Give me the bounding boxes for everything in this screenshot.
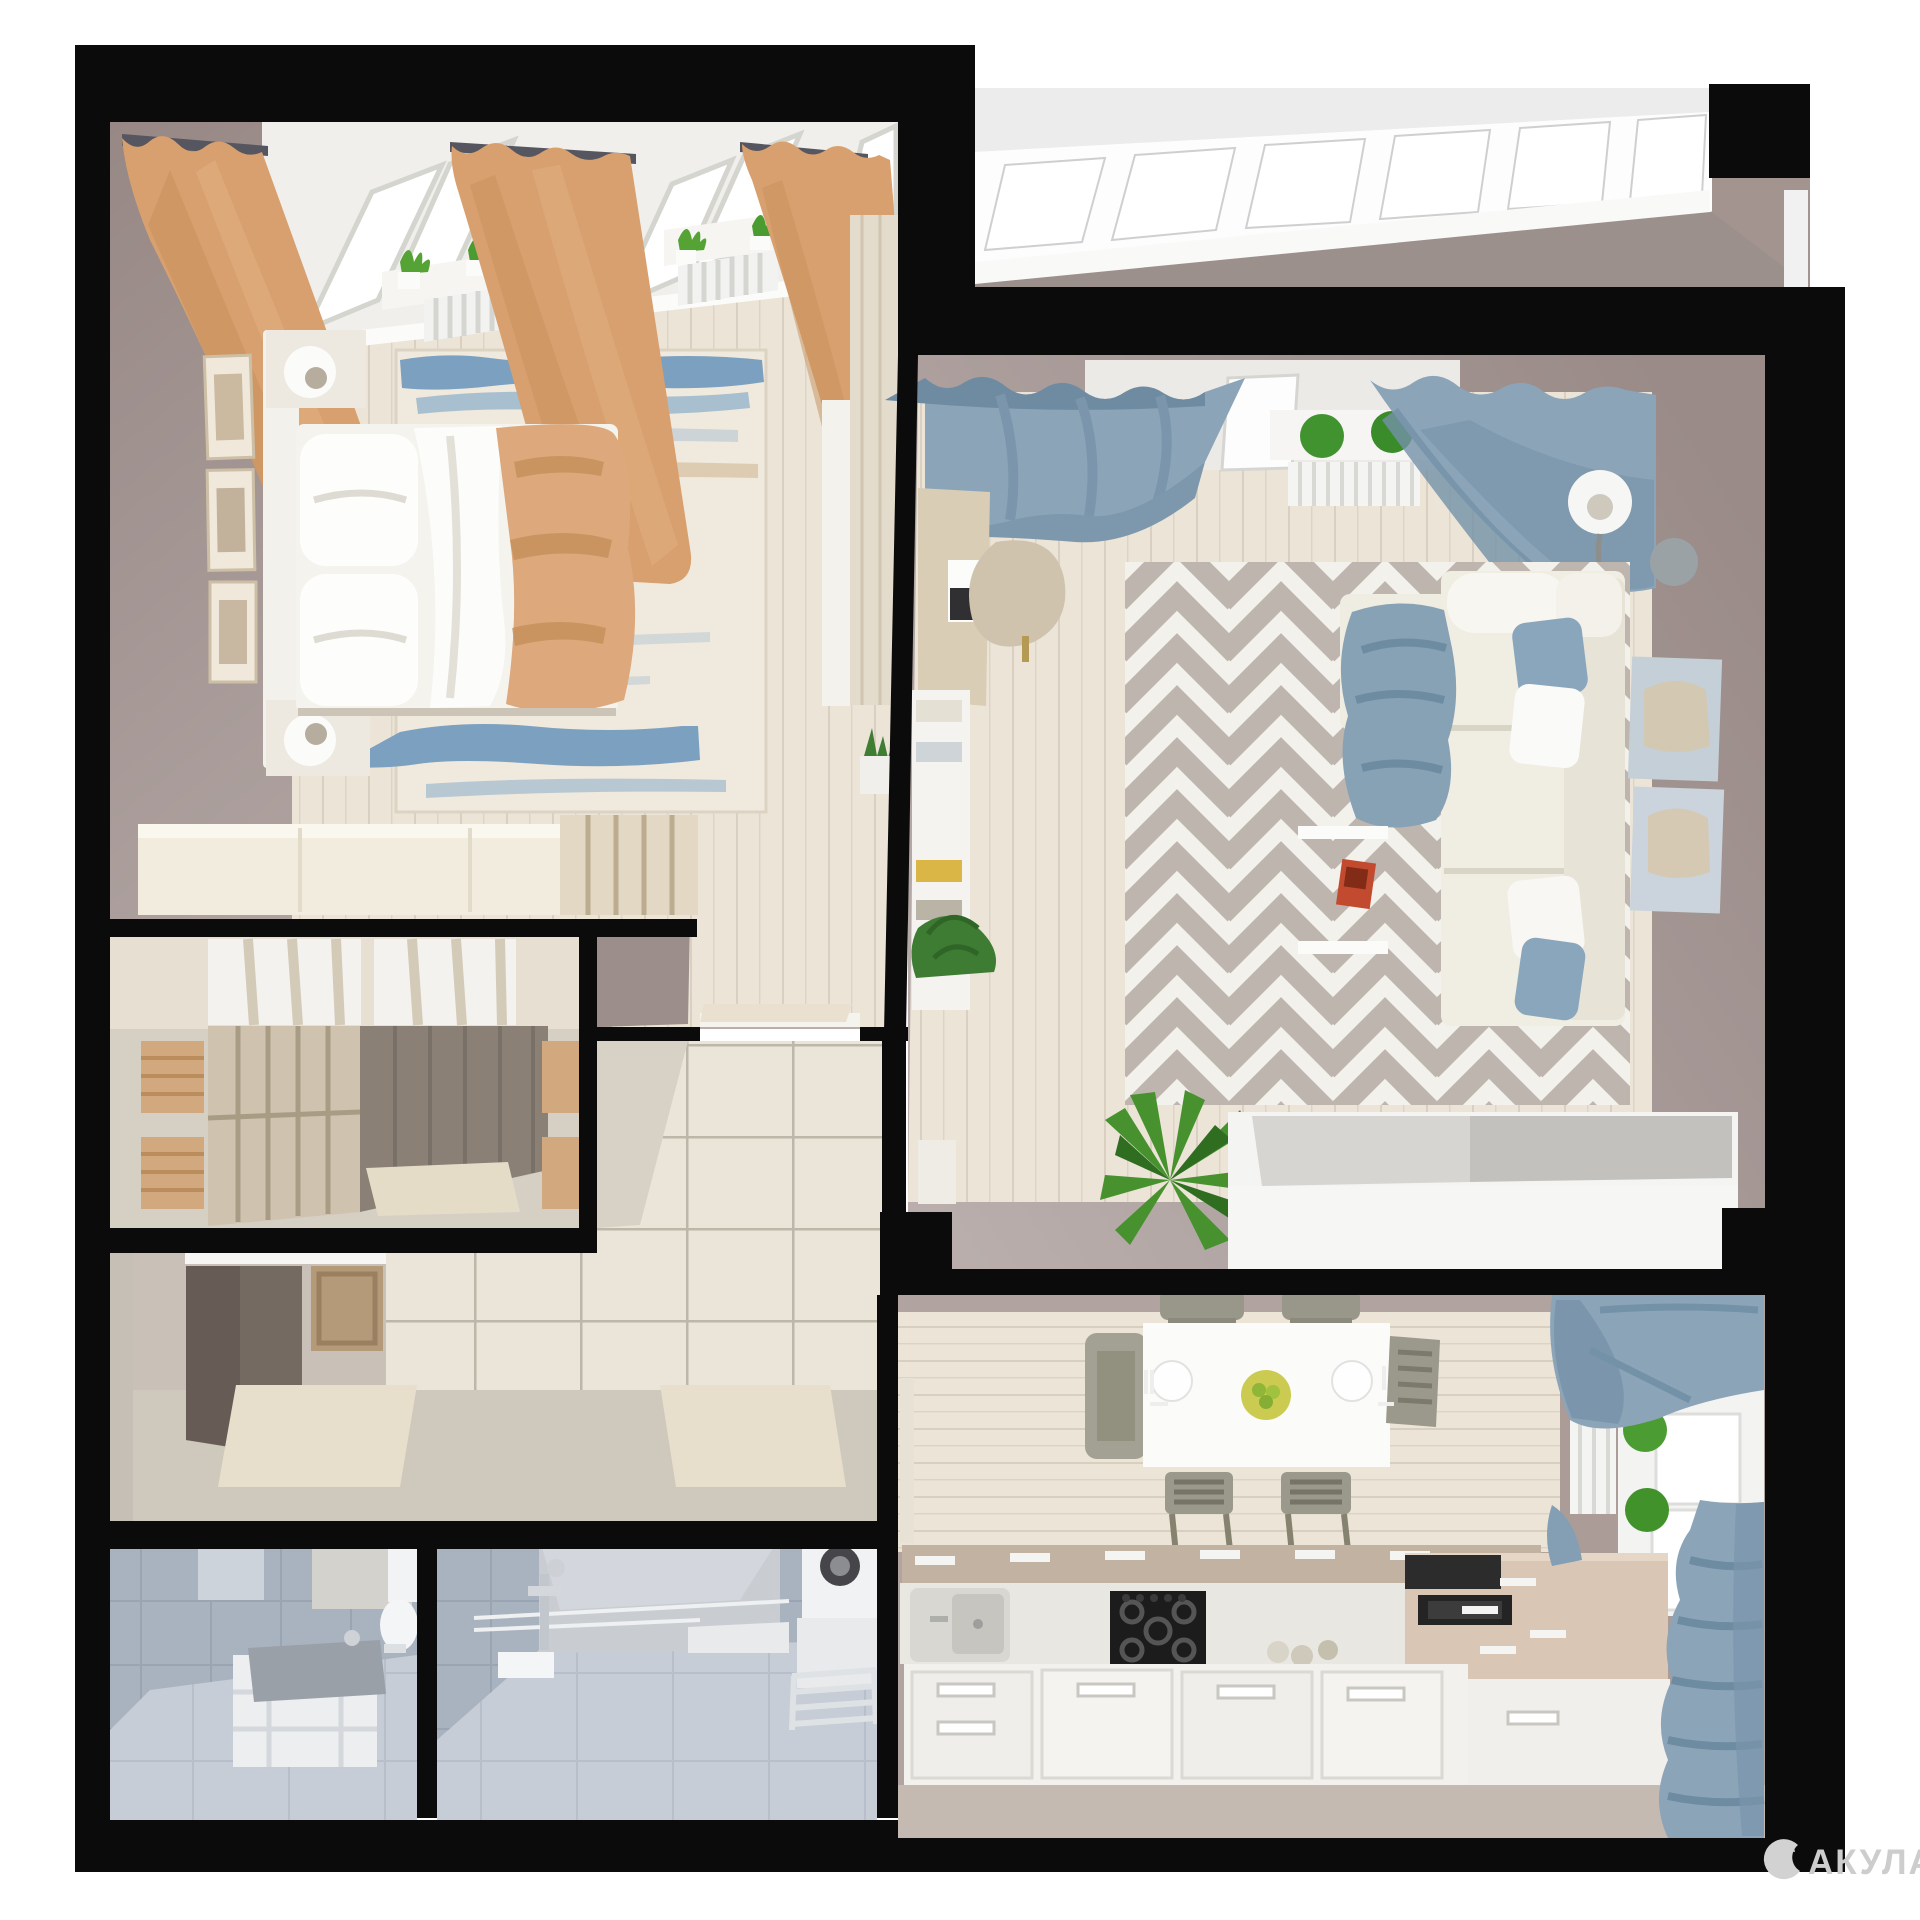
svg-text:АКУЛА: АКУЛА [1808,1843,1920,1882]
